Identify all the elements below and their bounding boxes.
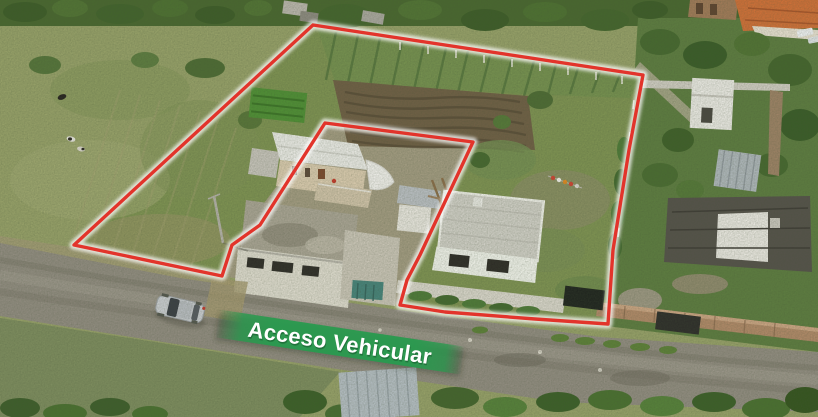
aerial-photo-view: Acceso Vehicular Acceso Vehicular bbox=[0, 0, 818, 417]
aerial-photo: Acceso Vehicular Acceso Vehicular bbox=[0, 0, 818, 417]
